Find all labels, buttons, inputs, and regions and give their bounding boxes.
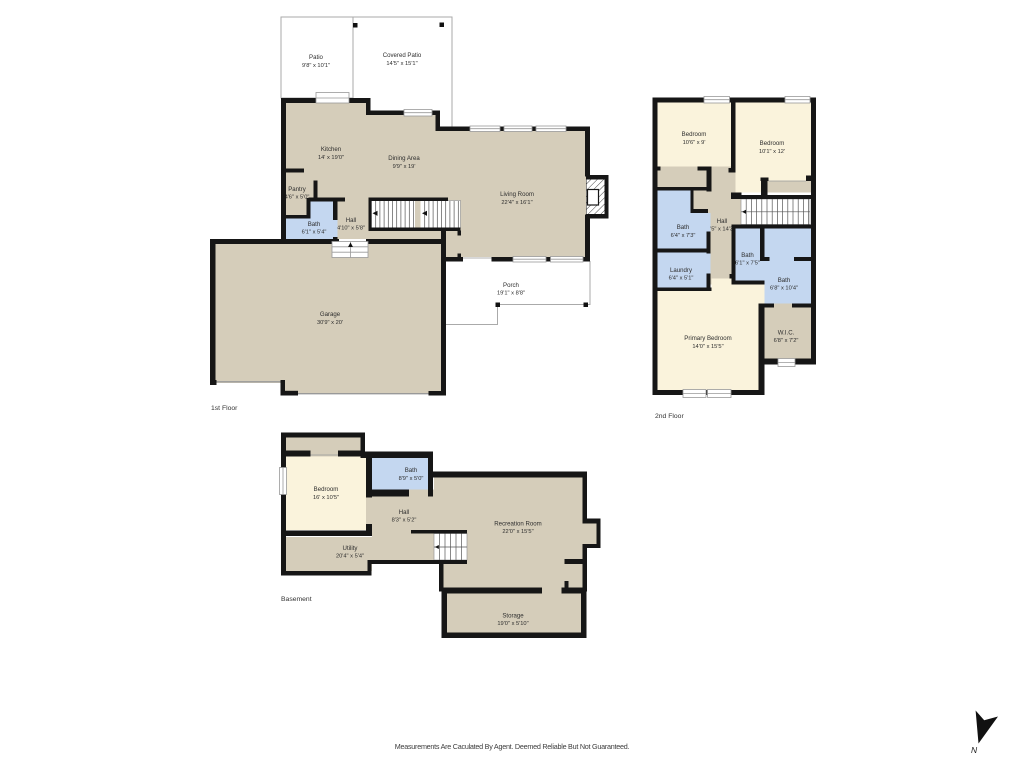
svg-text:W.I.C.: W.I.C. <box>778 330 795 337</box>
svg-text:Bedroom: Bedroom <box>314 486 339 493</box>
svg-text:14' x 19'0": 14' x 19'0" <box>318 155 344 161</box>
svg-text:Bedroom: Bedroom <box>682 131 707 138</box>
svg-text:Bath: Bath <box>677 224 690 231</box>
svg-text:Recreation Room: Recreation Room <box>494 521 541 528</box>
svg-text:Dining Area: Dining Area <box>388 155 420 162</box>
svg-text:Hall: Hall <box>346 217 357 224</box>
svg-text:10'6" x 9': 10'6" x 9' <box>683 140 706 146</box>
svg-text:N: N <box>971 745 978 755</box>
svg-text:19'0" x 5'10": 19'0" x 5'10" <box>497 621 528 627</box>
svg-text:6'8" x 10'4": 6'8" x 10'4" <box>770 286 798 292</box>
svg-text:Primary Bedroom: Primary Bedroom <box>684 335 731 342</box>
svg-text:4'6" x 5'0": 4'6" x 5'0" <box>285 195 310 201</box>
svg-text:Bath: Bath <box>308 221 321 228</box>
svg-text:6'1" x 5'4": 6'1" x 5'4" <box>302 230 327 236</box>
svg-text:6'4" x 5'1": 6'4" x 5'1" <box>669 276 694 282</box>
svg-text:2nd Floor: 2nd Floor <box>655 413 684 420</box>
svg-text:10'1" x 12': 10'1" x 12' <box>759 149 785 155</box>
svg-text:Measurements Are Caculated By: Measurements Are Caculated By Agent. Dee… <box>395 742 630 751</box>
svg-text:14'5" x 15'1": 14'5" x 15'1" <box>386 61 417 67</box>
svg-text:19'1" x 8'8": 19'1" x 8'8" <box>497 291 525 297</box>
svg-text:22'4" x 16'1": 22'4" x 16'1" <box>501 200 532 206</box>
svg-text:6'1" x 7'5": 6'1" x 7'5" <box>735 261 760 267</box>
svg-text:8'9" x 5'0": 8'9" x 5'0" <box>399 476 424 482</box>
svg-text:Patio: Patio <box>309 54 324 61</box>
svg-text:6'4" x 7'3": 6'4" x 7'3" <box>671 233 696 239</box>
svg-text:4'10" x 5'8": 4'10" x 5'8" <box>337 226 365 232</box>
svg-text:14'0" x 15'5": 14'0" x 15'5" <box>692 344 723 350</box>
svg-text:16' x 10'5": 16' x 10'5" <box>313 495 339 501</box>
svg-text:8'3" x 5'2": 8'3" x 5'2" <box>392 518 417 524</box>
svg-text:Hall: Hall <box>717 218 728 225</box>
svg-text:Bath: Bath <box>778 277 791 284</box>
svg-text:Bedroom: Bedroom <box>760 140 785 147</box>
svg-text:Bath: Bath <box>741 252 754 259</box>
svg-text:Hall: Hall <box>399 509 410 516</box>
svg-text:Garage: Garage <box>320 311 341 318</box>
svg-text:6'8" x 7'2": 6'8" x 7'2" <box>774 338 799 344</box>
svg-text:30'9" x 20': 30'9" x 20' <box>317 320 343 326</box>
svg-text:Porch: Porch <box>503 282 519 289</box>
svg-text:22'0" x 15'5": 22'0" x 15'5" <box>502 529 533 535</box>
svg-text:Kitchen: Kitchen <box>321 146 341 153</box>
svg-text:9'9" x 19': 9'9" x 19' <box>393 164 416 170</box>
svg-text:Pantry: Pantry <box>288 186 307 193</box>
svg-text:Covered Patio: Covered Patio <box>383 52 422 59</box>
svg-text:Storage: Storage <box>502 613 524 620</box>
svg-text:1st Floor: 1st Floor <box>211 405 238 412</box>
svg-text:Utility: Utility <box>343 545 359 552</box>
svg-text:4'5" x 14'3": 4'5" x 14'3" <box>707 227 735 233</box>
svg-text:Living Room: Living Room <box>500 191 534 198</box>
svg-text:9'8" x 10'1": 9'8" x 10'1" <box>302 63 330 69</box>
svg-text:Basement: Basement <box>281 596 312 603</box>
svg-text:20'4" x 5'4": 20'4" x 5'4" <box>336 554 364 560</box>
svg-text:Laundry: Laundry <box>670 267 693 274</box>
svg-text:Bath: Bath <box>405 467 418 474</box>
